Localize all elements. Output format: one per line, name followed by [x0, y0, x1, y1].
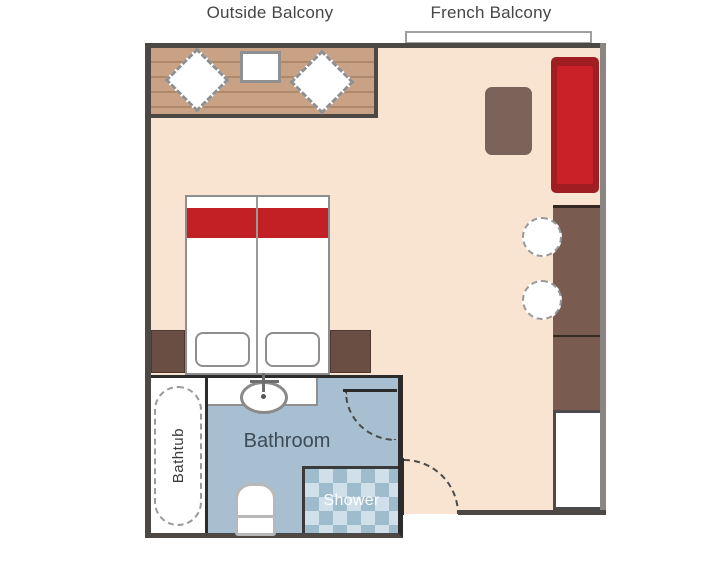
toilet-icon: [235, 483, 276, 536]
sofa-seat: [557, 66, 593, 184]
cabinet-upper-icon: [553, 205, 600, 335]
cabinet-lower-icon: [553, 335, 600, 412]
outside-balcony-label: Outside Balcony: [150, 3, 390, 23]
faucet-icon: [250, 380, 279, 383]
balcony-side-wall: [374, 43, 378, 118]
round-chair-icon: [522, 280, 562, 320]
bathtub-label: Bathtub: [170, 428, 187, 483]
bathroom-label: Bathroom: [197, 430, 377, 453]
pillow-icon: [265, 332, 320, 367]
sink-drain: [261, 394, 266, 399]
pillow-icon: [195, 332, 250, 367]
toilet-tank-line: [238, 515, 273, 518]
closet-icon: [553, 410, 600, 510]
left-wall: [145, 43, 151, 538]
bottom-wall: [458, 510, 606, 515]
deck-table-icon: [240, 51, 281, 83]
shower-label: Shower: [323, 492, 379, 510]
nightstand-right-icon: [330, 330, 371, 373]
shower-icon: Shower: [302, 466, 398, 533]
round-chair-icon: [522, 217, 562, 257]
top-wall: [145, 43, 606, 48]
nightstand-left-icon: [151, 330, 185, 373]
balcony-bottom-wall: [151, 114, 378, 118]
stateroom-floor-plan: Outside Balcony French Balcony Bathtub B…: [0, 0, 726, 562]
coffee-table-icon: [485, 87, 532, 155]
right-wall: [600, 43, 606, 515]
bed-divider-line: [256, 197, 258, 373]
french-balcony-label: French Balcony: [376, 3, 606, 23]
bathtub-icon: Bathtub: [154, 386, 202, 526]
